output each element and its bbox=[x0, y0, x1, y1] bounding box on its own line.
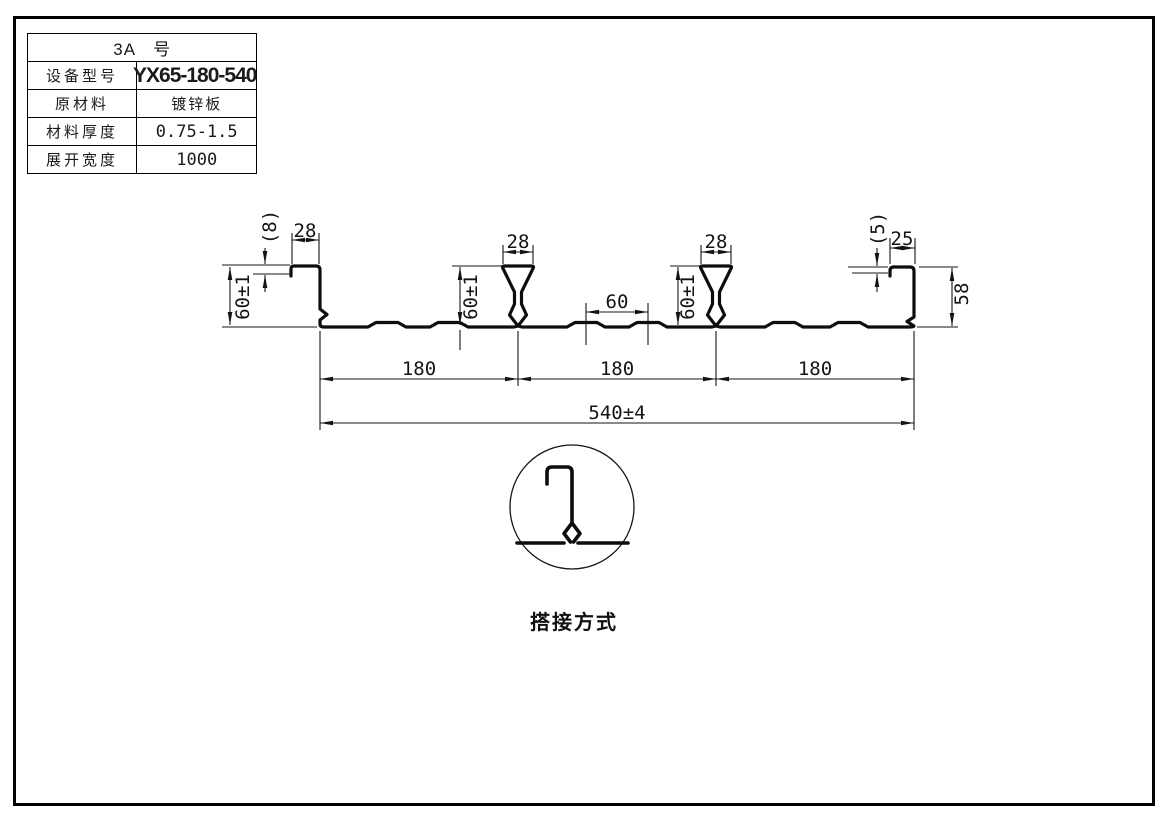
dim-span2: 180 bbox=[600, 358, 634, 380]
detail-hook-rib bbox=[547, 467, 572, 523]
dim-left-flange: (8) bbox=[259, 210, 281, 244]
extension-lines bbox=[222, 233, 958, 430]
dim-rib2-height: 60±1 bbox=[677, 274, 699, 320]
dim-span1: 180 bbox=[402, 358, 436, 380]
dim-overall-width: 540±4 bbox=[588, 402, 645, 424]
dim-right-flange: (5) bbox=[867, 212, 889, 246]
section-drawing: (8) 28 60±1 28 60±1 60 28 60±1 (5) 25 58… bbox=[0, 0, 1169, 827]
detail-lap-joint bbox=[517, 467, 628, 543]
profile-outline bbox=[291, 266, 914, 327]
dim-rib1-width: 28 bbox=[507, 231, 530, 253]
dim-rib2-width: 28 bbox=[705, 231, 728, 253]
dim-left-height: 60±1 bbox=[232, 274, 254, 320]
dim-right-height: 58 bbox=[951, 283, 973, 306]
drawing-sheet: 3A 号 设备型号 YX65-180-540 原材料 镀锌板 材料厚度 0.75… bbox=[0, 0, 1169, 827]
detail-diamond-lock bbox=[564, 523, 580, 542]
detail-caption: 搭接方式 bbox=[530, 610, 618, 634]
dim-rib1-height: 60±1 bbox=[460, 274, 482, 320]
dimension-lines bbox=[230, 240, 952, 423]
dim-right-lip: 25 bbox=[891, 228, 914, 250]
dim-left-lip: 28 bbox=[294, 220, 317, 242]
dim-flute-pitch: 60 bbox=[606, 291, 629, 313]
dim-span3: 180 bbox=[798, 358, 832, 380]
